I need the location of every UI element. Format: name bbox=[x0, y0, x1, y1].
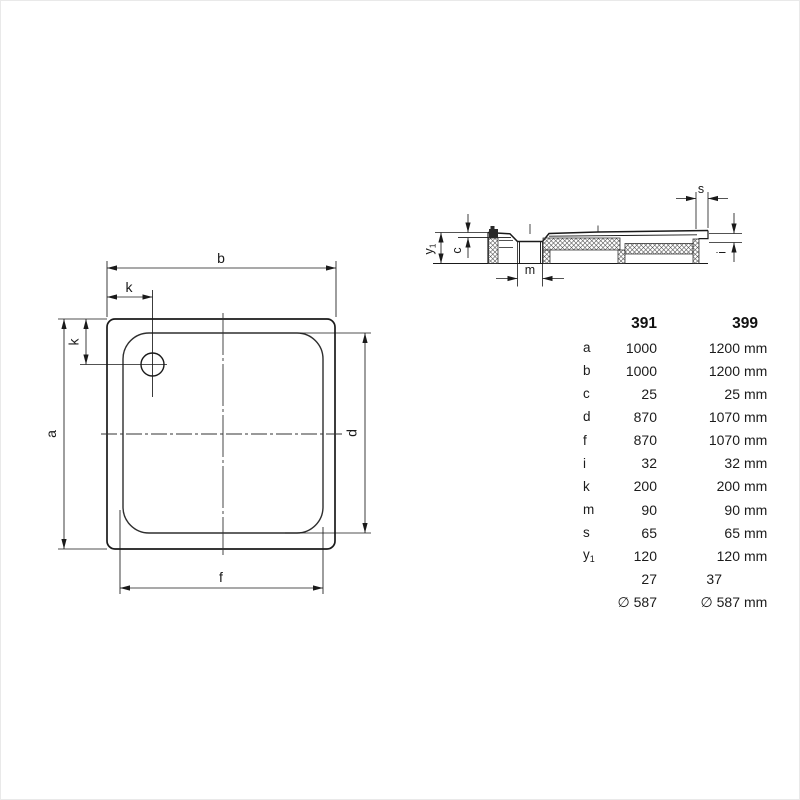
row-label: f bbox=[570, 433, 600, 448]
dim-label-i: i bbox=[717, 251, 729, 254]
unit: mm bbox=[740, 455, 783, 471]
dim-label-m: m bbox=[525, 263, 535, 277]
row-label: k bbox=[570, 479, 600, 494]
value-399: ∅ 587 bbox=[657, 594, 740, 611]
row-label: a bbox=[570, 340, 600, 355]
dim-label-y1: y1 bbox=[422, 243, 438, 254]
value-391: 32 bbox=[600, 455, 657, 471]
dim-label-k-top: k bbox=[126, 279, 134, 295]
value-399: 90 bbox=[657, 502, 740, 518]
dim-label-f: f bbox=[219, 569, 223, 585]
value-399: 1070 bbox=[657, 432, 740, 448]
cross-section-view: s y1 c m i bbox=[422, 182, 742, 287]
table-row-b: b 1000 1200 mm bbox=[570, 359, 783, 382]
unit: mm bbox=[740, 363, 783, 379]
value-391: 120 bbox=[600, 548, 657, 564]
value-399: 37 bbox=[639, 571, 722, 587]
dim-label-k-left: k bbox=[66, 338, 82, 346]
drain-flange-lines bbox=[499, 241, 513, 248]
value-391: 870 bbox=[600, 409, 657, 425]
dim-label-c: c bbox=[450, 247, 464, 253]
unit: mm bbox=[740, 409, 783, 425]
table-header-row: 391 399 bbox=[570, 311, 783, 336]
column-header-399: 399 bbox=[675, 315, 758, 333]
row-label: s bbox=[570, 525, 600, 540]
right-rim-lip bbox=[699, 231, 709, 239]
row-label: d bbox=[570, 409, 600, 424]
table-row-f: f 870 1070 mm bbox=[570, 429, 783, 452]
table-row-i: i 32 32 mm bbox=[570, 452, 783, 475]
value-399: 1200 bbox=[657, 363, 740, 379]
dimension-table: 391 399 a 1000 1200 mm b 1000 1200 mm c … bbox=[570, 311, 783, 614]
dim-b bbox=[107, 261, 336, 317]
table-row-y1: y1 120 120 mm bbox=[570, 544, 783, 567]
column-header-391: 391 bbox=[600, 315, 657, 333]
value-399: 120 bbox=[657, 548, 740, 564]
drain-walls bbox=[520, 242, 541, 263]
table-row-k: k 200 200 mm bbox=[570, 475, 783, 498]
unit: mm bbox=[740, 594, 783, 610]
table-row-extra: 27 37 bbox=[570, 567, 783, 590]
value-399: 1070 bbox=[657, 409, 740, 425]
value-391: 870 bbox=[600, 432, 657, 448]
table-row-d: d 870 1070 mm bbox=[570, 405, 783, 428]
value-391: 90 bbox=[600, 502, 657, 518]
dim-label-s: s bbox=[698, 182, 704, 196]
value-391: 65 bbox=[600, 525, 657, 541]
value-391: 25 bbox=[600, 386, 657, 402]
table-row-c: c 25 25 mm bbox=[570, 382, 783, 405]
table-row-a: a 1000 1200 mm bbox=[570, 336, 783, 359]
row-label: m bbox=[570, 502, 600, 517]
table-row-m: m 90 90 mm bbox=[570, 498, 783, 521]
value-399: 32 bbox=[657, 455, 740, 471]
row-label: i bbox=[570, 456, 600, 471]
table-row-diameter: ∅ 587 ∅ 587 mm bbox=[570, 591, 783, 614]
row-label: c bbox=[570, 386, 600, 401]
dim-label-d: d bbox=[344, 429, 360, 437]
tray-surface-underside bbox=[549, 235, 697, 236]
unit: mm bbox=[740, 502, 783, 518]
unit: mm bbox=[740, 432, 783, 448]
row-label: b bbox=[570, 363, 600, 378]
plan-view: b k k a d f bbox=[43, 250, 371, 594]
value-391: 200 bbox=[600, 478, 657, 494]
value-399: 25 bbox=[657, 386, 740, 402]
dim-s bbox=[676, 192, 728, 229]
value-399: 200 bbox=[657, 478, 740, 494]
dim-label-a: a bbox=[43, 430, 59, 438]
row-label: y1 bbox=[570, 547, 600, 564]
value-391: 1000 bbox=[600, 340, 657, 356]
value-391: 1000 bbox=[600, 363, 657, 379]
unit: mm bbox=[740, 386, 783, 402]
value-399: 65 bbox=[657, 525, 740, 541]
dim-a bbox=[58, 319, 107, 549]
left-rim-nub bbox=[491, 226, 495, 230]
unit: mm bbox=[740, 525, 783, 541]
technical-drawing-page: b k k a d f bbox=[0, 0, 800, 800]
unit: mm bbox=[740, 478, 783, 494]
value-391: ∅ 587 bbox=[600, 594, 657, 611]
dim-label-b: b bbox=[217, 250, 225, 266]
unit: mm bbox=[740, 340, 783, 356]
table-row-s: s 65 65 mm bbox=[570, 521, 783, 544]
unit: mm bbox=[740, 548, 783, 564]
value-399: 1200 bbox=[657, 340, 740, 356]
left-rim-block bbox=[489, 229, 498, 238]
